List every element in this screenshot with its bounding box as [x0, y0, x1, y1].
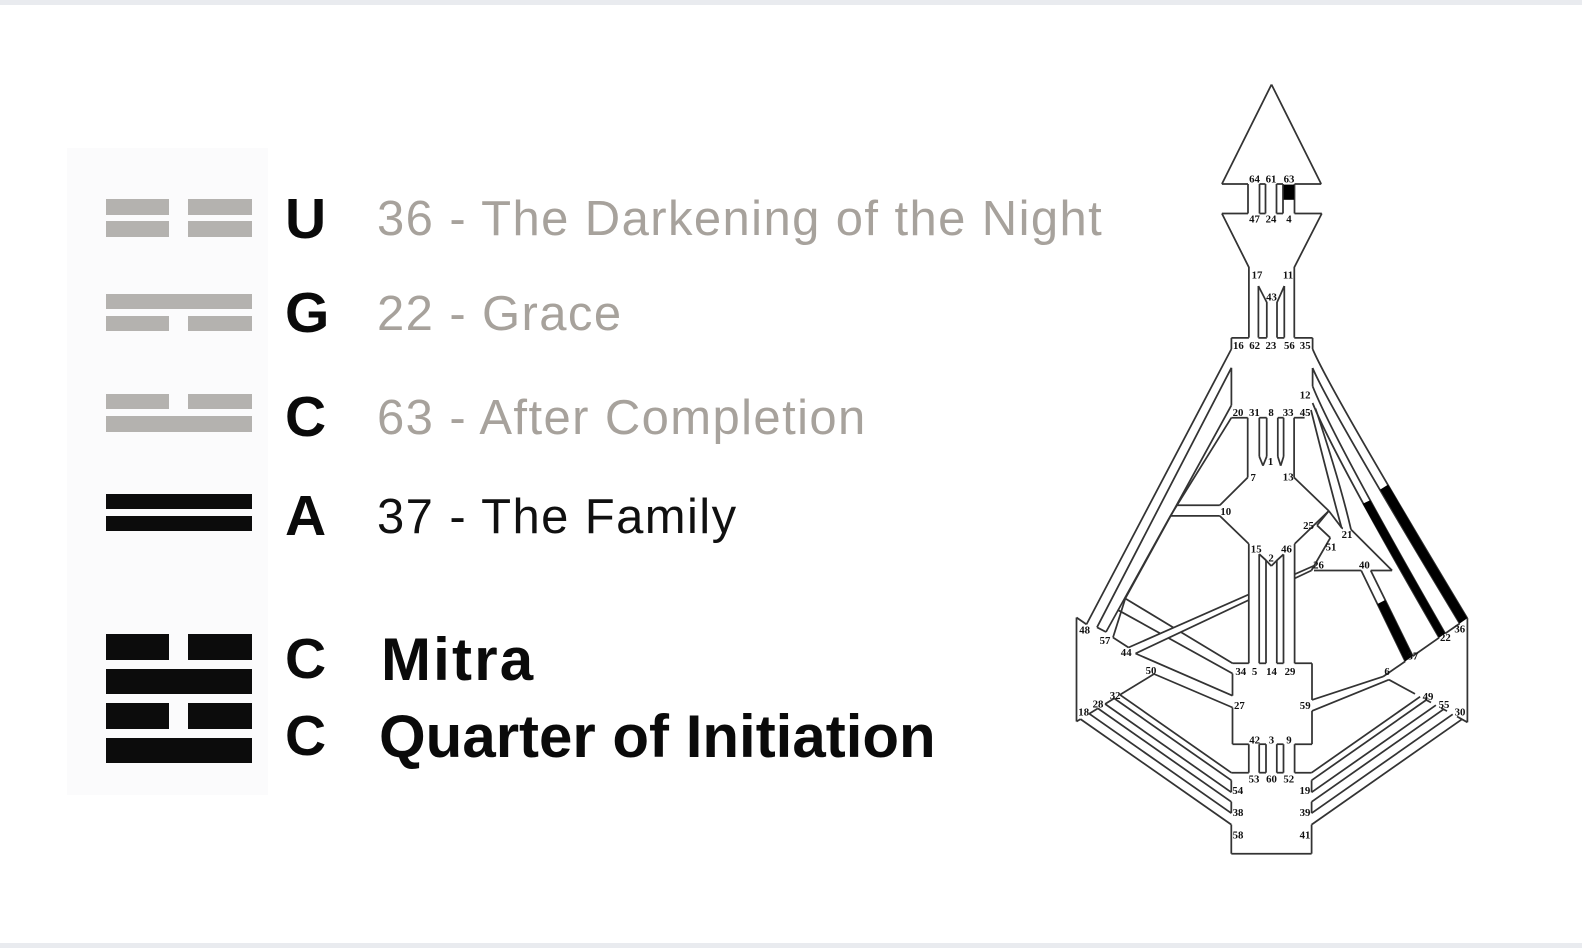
svg-text:19: 19: [1300, 785, 1311, 797]
svg-text:51: 51: [1326, 542, 1337, 554]
svg-text:4: 4: [1286, 214, 1292, 226]
svg-text:47: 47: [1249, 214, 1260, 226]
svg-text:27: 27: [1234, 700, 1245, 712]
svg-text:28: 28: [1093, 699, 1104, 711]
svg-text:38: 38: [1233, 807, 1244, 819]
svg-text:49: 49: [1423, 691, 1434, 703]
svg-text:22: 22: [1440, 632, 1451, 644]
svg-text:36: 36: [1454, 624, 1465, 636]
svg-text:12: 12: [1300, 390, 1311, 402]
svg-text:39: 39: [1300, 807, 1311, 819]
svg-text:42: 42: [1249, 735, 1260, 747]
svg-text:30: 30: [1455, 706, 1466, 718]
svg-text:55: 55: [1439, 699, 1450, 711]
svg-text:16: 16: [1233, 340, 1244, 352]
svg-text:25: 25: [1303, 520, 1314, 532]
svg-text:37: 37: [1408, 650, 1419, 662]
svg-text:60: 60: [1266, 774, 1277, 786]
svg-text:24: 24: [1266, 214, 1277, 226]
svg-text:9: 9: [1286, 735, 1292, 747]
svg-text:3: 3: [1269, 735, 1275, 747]
svg-text:45: 45: [1300, 407, 1311, 419]
svg-text:2: 2: [1268, 553, 1273, 565]
svg-text:46: 46: [1281, 544, 1292, 556]
svg-text:14: 14: [1266, 666, 1277, 678]
svg-text:35: 35: [1300, 340, 1311, 352]
svg-text:6: 6: [1384, 666, 1390, 678]
svg-text:50: 50: [1146, 665, 1157, 677]
svg-text:21: 21: [1342, 529, 1353, 541]
svg-text:18: 18: [1078, 707, 1089, 719]
svg-text:34: 34: [1235, 666, 1246, 678]
svg-text:20: 20: [1233, 407, 1244, 419]
svg-text:57: 57: [1100, 635, 1111, 647]
svg-text:26: 26: [1313, 560, 1324, 572]
svg-text:43: 43: [1266, 291, 1277, 303]
svg-text:5: 5: [1252, 666, 1257, 678]
svg-text:32: 32: [1110, 690, 1121, 702]
svg-text:40: 40: [1359, 560, 1370, 572]
svg-text:54: 54: [1232, 785, 1243, 797]
svg-text:64: 64: [1249, 174, 1260, 186]
svg-text:44: 44: [1121, 647, 1132, 659]
svg-text:63: 63: [1284, 174, 1295, 186]
svg-text:56: 56: [1284, 340, 1295, 352]
svg-text:62: 62: [1249, 340, 1260, 352]
svg-text:29: 29: [1285, 666, 1296, 678]
svg-text:48: 48: [1079, 624, 1090, 636]
svg-text:13: 13: [1283, 472, 1294, 484]
svg-text:8: 8: [1268, 407, 1274, 419]
svg-text:10: 10: [1220, 506, 1231, 518]
svg-text:17: 17: [1252, 269, 1263, 281]
svg-text:23: 23: [1266, 340, 1277, 352]
svg-text:11: 11: [1283, 269, 1293, 281]
svg-text:53: 53: [1249, 774, 1260, 786]
svg-text:31: 31: [1249, 407, 1260, 419]
svg-text:58: 58: [1233, 830, 1244, 842]
svg-text:1: 1: [1268, 456, 1273, 468]
svg-text:41: 41: [1300, 830, 1311, 842]
svg-text:15: 15: [1251, 544, 1262, 556]
svg-text:59: 59: [1300, 700, 1311, 712]
svg-text:52: 52: [1283, 774, 1294, 786]
svg-text:33: 33: [1283, 407, 1294, 419]
svg-text:7: 7: [1250, 472, 1256, 484]
svg-text:61: 61: [1266, 174, 1277, 186]
